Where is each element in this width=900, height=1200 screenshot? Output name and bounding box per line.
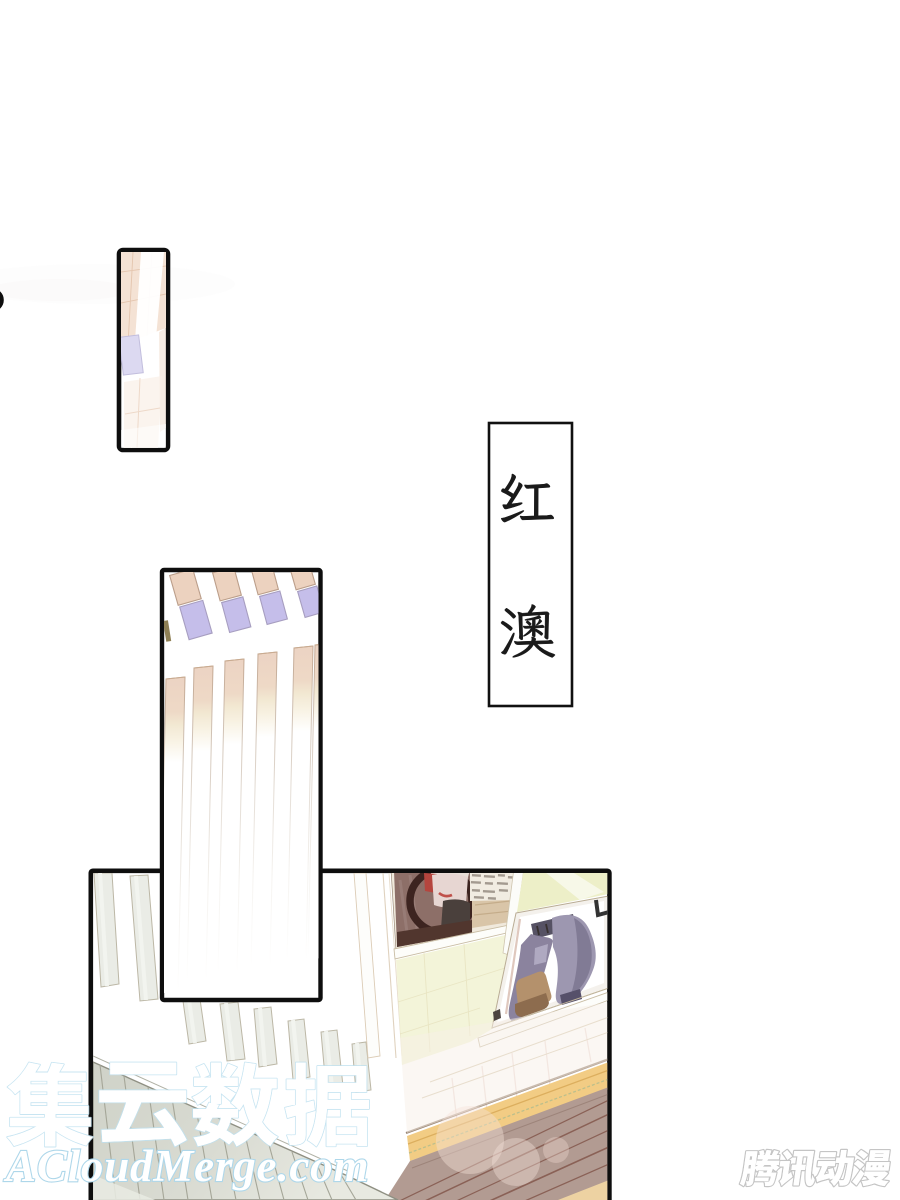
- svg-text:ACloudMerge.com: ACloudMerge.com: [3, 1141, 369, 1191]
